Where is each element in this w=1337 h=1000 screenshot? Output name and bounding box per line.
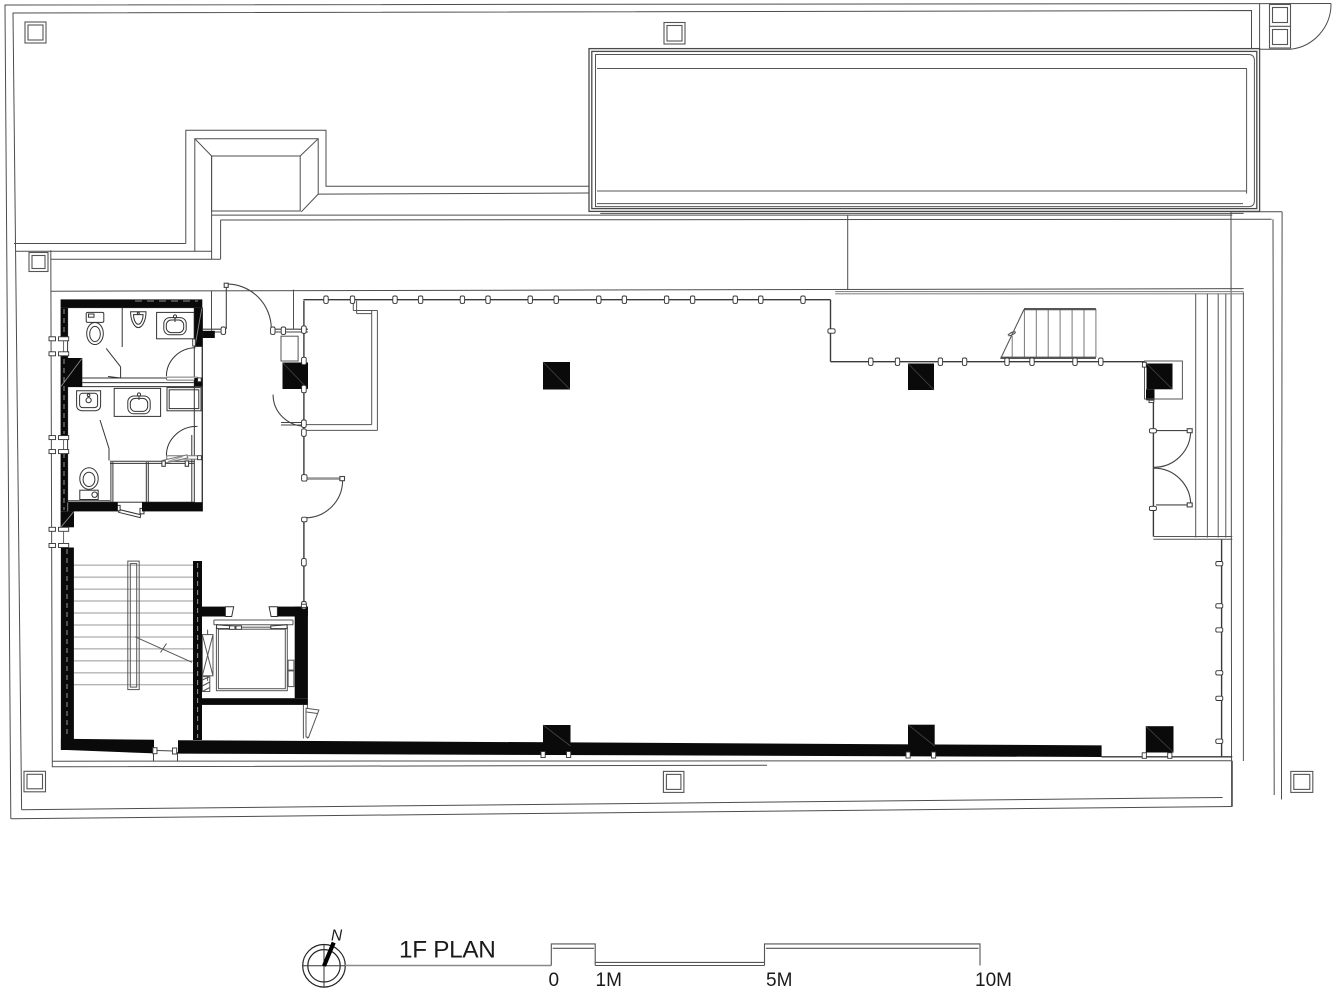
svg-text:1F PLAN: 1F PLAN <box>399 937 495 964</box>
svg-text:0: 0 <box>549 970 560 991</box>
svg-text:N: N <box>331 928 343 945</box>
svg-text:10M: 10M <box>975 970 1012 991</box>
svg-text:1M: 1M <box>596 970 622 991</box>
svg-text:5M: 5M <box>766 970 792 991</box>
